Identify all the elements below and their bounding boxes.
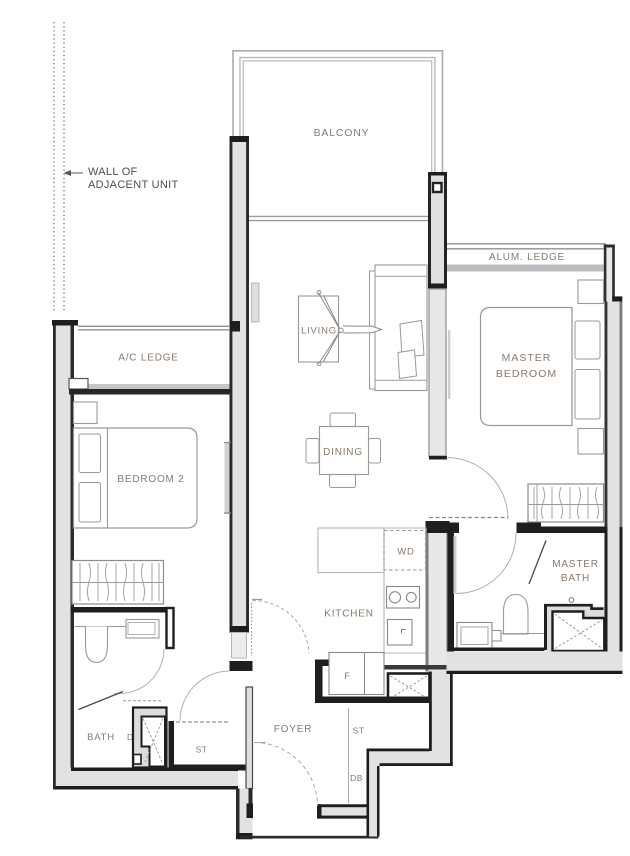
svg-text:A/C LEDGE: A/C LEDGE (118, 353, 179, 364)
svg-text:DINING: DINING (323, 447, 363, 458)
svg-text:DB: DB (350, 773, 363, 783)
svg-text:FOYER: FOYER (274, 724, 312, 735)
svg-text:WALL OF: WALL OF (88, 166, 138, 178)
svg-text:KITCHEN: KITCHEN (324, 609, 374, 620)
svg-text:MASTER: MASTER (552, 559, 598, 570)
svg-text:WD: WD (397, 547, 414, 558)
svg-text:ST: ST (353, 726, 365, 736)
svg-text:BATH: BATH (561, 573, 590, 584)
svg-text:BEDROOM 2: BEDROOM 2 (117, 474, 184, 485)
svg-text:ALUM. LEDGE: ALUM. LEDGE (489, 252, 565, 263)
svg-text:MASTER: MASTER (502, 352, 552, 364)
svg-text:F: F (344, 671, 351, 682)
svg-text:BEDROOM: BEDROOM (496, 368, 557, 380)
svg-text:ADJACENT UNIT: ADJACENT UNIT (88, 179, 178, 191)
svg-text:BATH: BATH (87, 732, 115, 743)
svg-text:BALCONY: BALCONY (314, 127, 370, 139)
svg-text:ST: ST (196, 745, 208, 755)
svg-text:LIVING: LIVING (301, 326, 337, 337)
